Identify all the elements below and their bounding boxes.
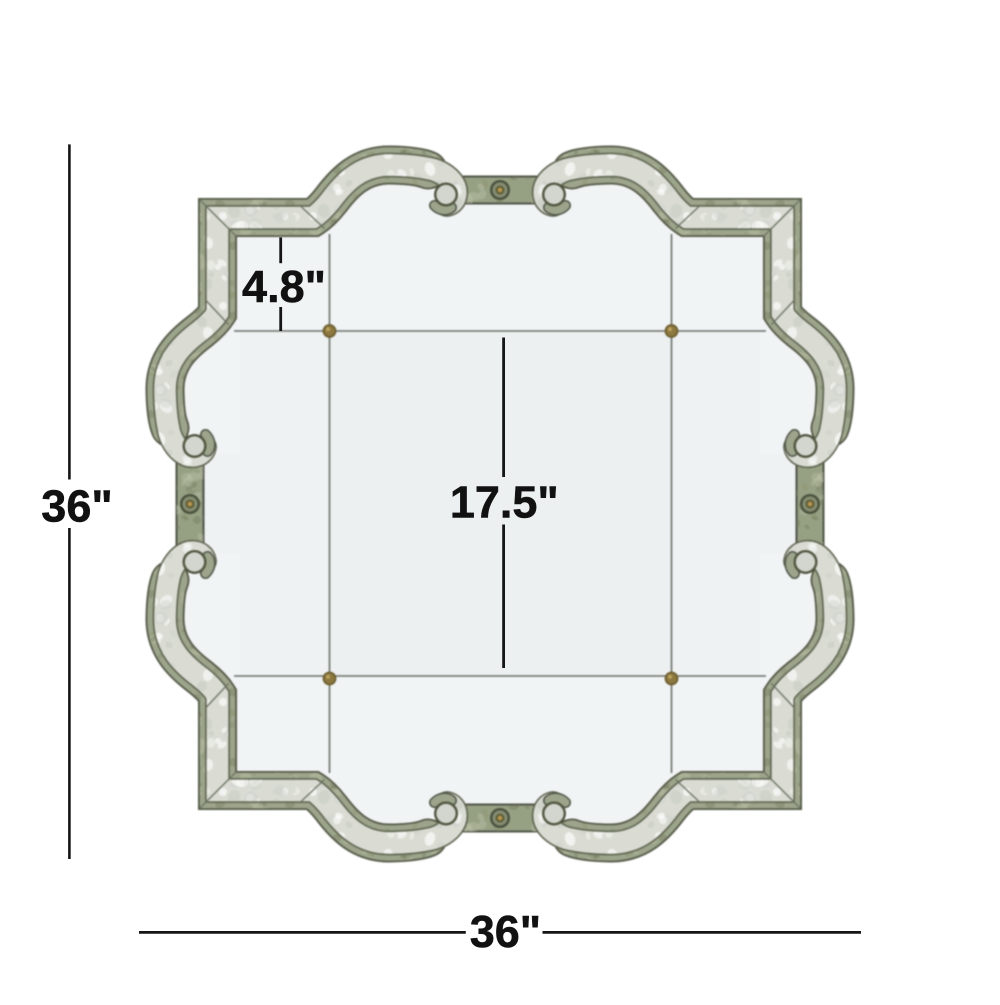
svg-text:36": 36" xyxy=(41,480,112,531)
svg-text:4.8": 4.8" xyxy=(242,261,326,312)
svg-text:17.5": 17.5" xyxy=(450,476,559,527)
svg-text:36": 36" xyxy=(470,906,541,957)
